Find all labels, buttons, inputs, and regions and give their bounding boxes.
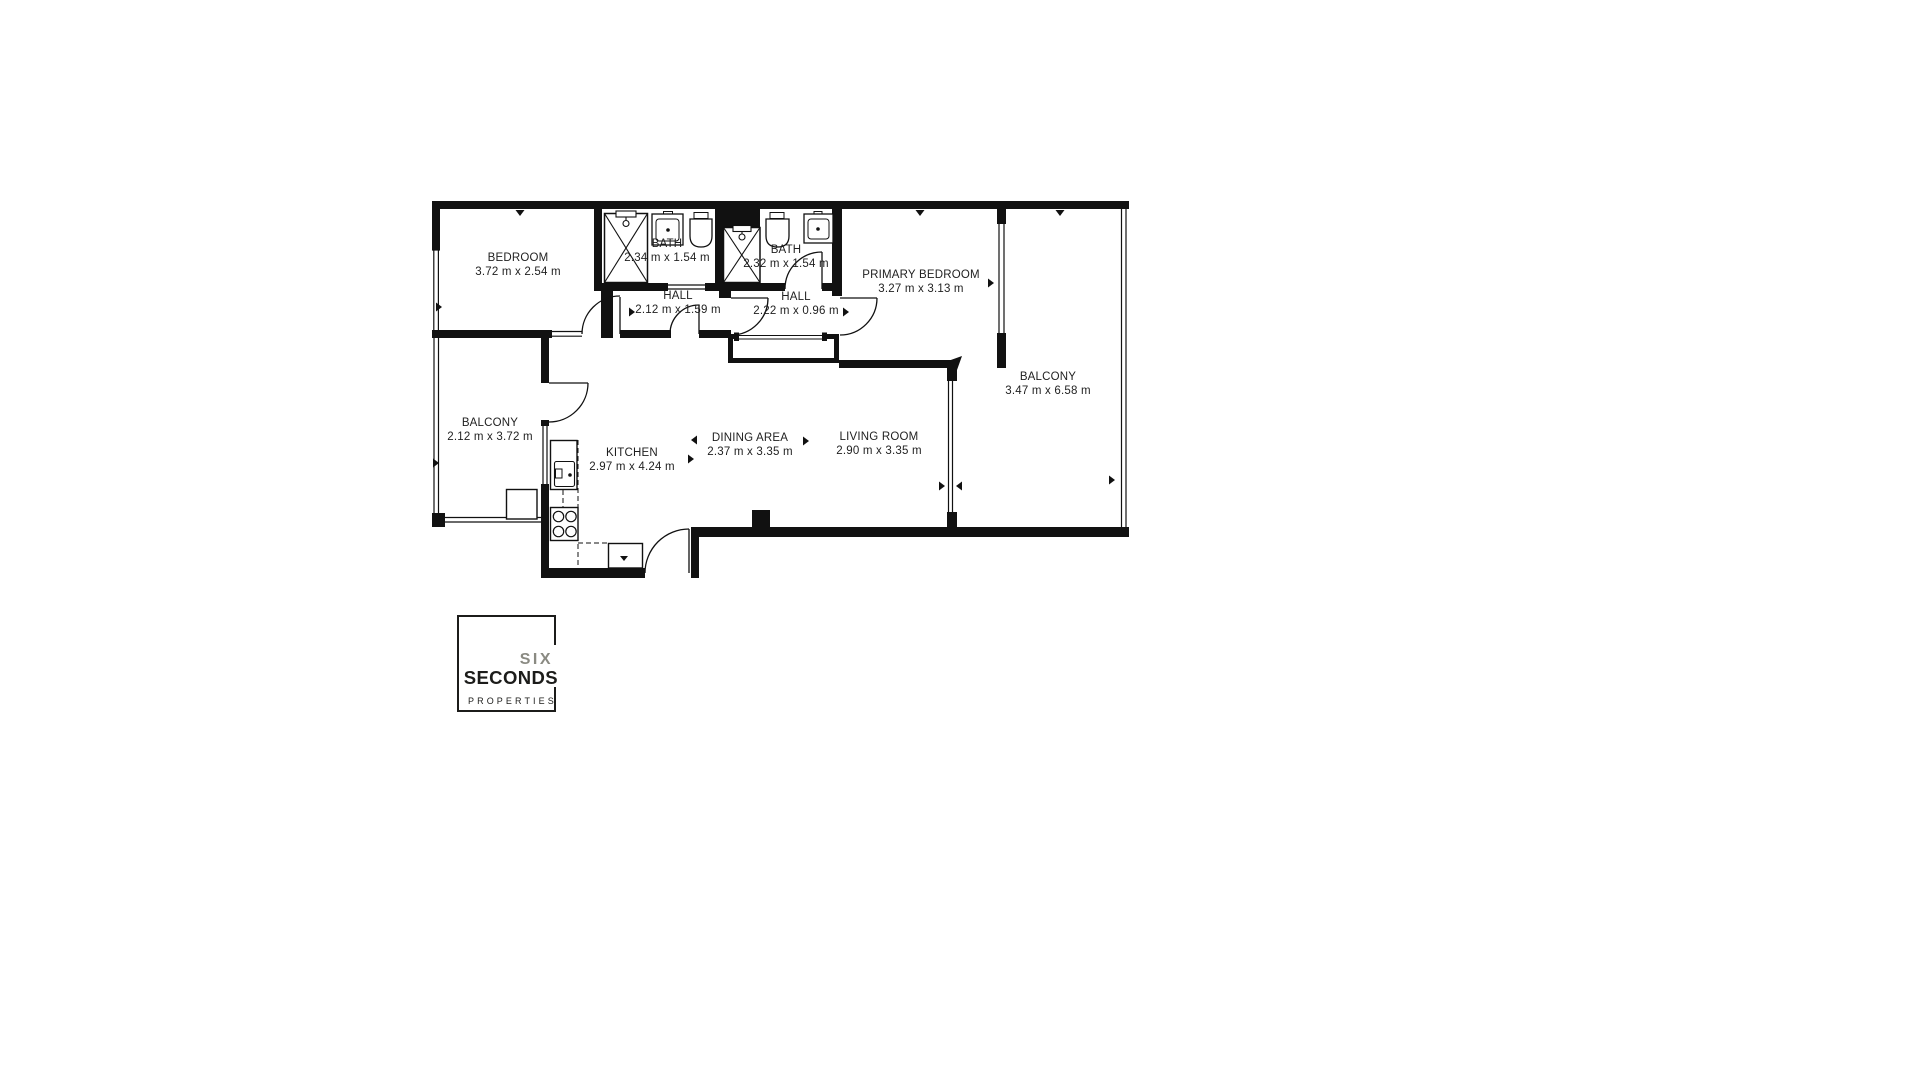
bath1-slider (668, 285, 705, 289)
room-label-balcony-right: BALCONY3.47 m x 6.58 m (1005, 371, 1090, 398)
kitchen-balcony-window (543, 426, 547, 484)
kitchen-sink-icon (551, 441, 578, 490)
primary-bedroom-window (999, 224, 1004, 333)
room-label-primary-bedroom: PRIMARY BEDROOM3.27 m x 3.13 m (862, 269, 980, 296)
balcony-door-swing (549, 383, 588, 422)
bedroom-window (432, 250, 440, 330)
primary-bedroom-door-swing (840, 298, 877, 335)
entry-door-swing (645, 529, 689, 573)
logo-border-bottom (457, 710, 556, 712)
room-label-kitchen: KITCHEN2.97 m x 4.24 m (589, 447, 674, 474)
six-seconds-properties-logo: SIX SECONDS PROPERTIES (457, 615, 556, 712)
logo-border-right-upper (554, 615, 556, 645)
logo-border-top (457, 615, 556, 617)
room-label-hall-1: HALL2.12 m x 1.59 m (635, 290, 720, 317)
toilet-icon (766, 213, 789, 248)
room-label-hall-2: HALL2.22 m x 0.96 m (753, 291, 838, 318)
floor-plan-page: BEDROOM3.72 m x 2.54 m BATH2.34 m x 1.54… (0, 0, 1920, 1080)
worktop (609, 544, 643, 569)
balcony-planter (507, 490, 538, 520)
sink-icon (804, 212, 833, 244)
storage-box (728, 333, 839, 364)
right-balcony-rail (1122, 209, 1127, 527)
room-label-dining-area: DINING AREA2.37 m x 3.35 m (707, 432, 792, 459)
logo-border-left (457, 615, 459, 712)
floor-plan-drawing (0, 0, 1920, 1080)
bedroom-partition-glass (552, 332, 582, 337)
room-label-bath-2: BATH2.32 m x 1.54 m (743, 244, 828, 271)
stove-icon (551, 508, 579, 541)
room-label-balcony-left: BALCONY2.12 m x 3.72 m (447, 417, 532, 444)
living-balcony-window (949, 381, 953, 512)
room-label-bedroom: BEDROOM3.72 m x 2.54 m (475, 252, 560, 279)
logo-text-seconds: SECONDS (464, 667, 558, 689)
logo-text-properties: PROPERTIES (468, 696, 557, 706)
room-label-living-room: LIVING ROOM2.90 m x 3.35 m (836, 431, 921, 458)
room-label-bath-1: BATH2.34 m x 1.54 m (624, 238, 709, 265)
